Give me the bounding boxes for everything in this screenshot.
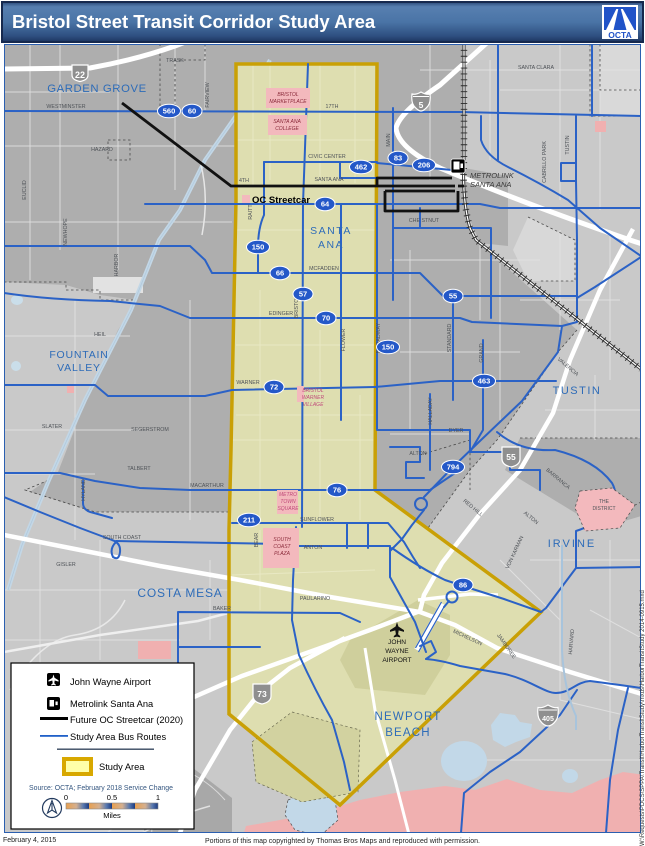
- svg-text:ANTON: ANTON: [304, 545, 323, 551]
- svg-text:Future OC Streetcar (2020): Future OC Streetcar (2020): [70, 715, 183, 725]
- svg-text:COAST: COAST: [273, 544, 291, 550]
- svg-text:GRAND: GRAND: [479, 343, 485, 362]
- svg-text:DISTRICT: DISTRICT: [592, 506, 615, 512]
- svg-text:EDINGER: EDINGER: [269, 311, 293, 317]
- svg-text:55: 55: [506, 452, 516, 462]
- svg-text:560: 560: [163, 107, 176, 116]
- svg-text:WAYNE: WAYNE: [385, 648, 409, 655]
- svg-text:HYLAND: HYLAND: [81, 479, 87, 501]
- svg-text:66: 66: [276, 269, 284, 278]
- svg-text:BAKER: BAKER: [213, 606, 231, 612]
- svg-text:February 4, 2015: February 4, 2015: [3, 837, 56, 844]
- svg-text:22: 22: [75, 70, 85, 80]
- svg-text:ANA: ANA: [318, 239, 344, 251]
- svg-text:463: 463: [478, 377, 491, 386]
- svg-text:WESTMINSTER: WESTMINSTER: [46, 104, 85, 110]
- svg-text:70: 70: [322, 314, 330, 323]
- svg-text:EUCLID: EUCLID: [22, 180, 28, 200]
- svg-text:SANTA ANA: SANTA ANA: [314, 177, 344, 183]
- svg-text:AIRPORT: AIRPORT: [382, 657, 411, 664]
- svg-text:SOUTH COAST: SOUTH COAST: [103, 535, 142, 541]
- svg-text:Study Area Bus Routes: Study Area Bus Routes: [70, 732, 166, 742]
- svg-text:Portions of this map copyright: Portions of this map copyrighted by Thom…: [205, 838, 480, 845]
- svg-text:NEWPORT: NEWPORT: [375, 711, 442, 723]
- svg-text:Study Area: Study Area: [99, 762, 145, 772]
- svg-text:SQUARE: SQUARE: [277, 506, 299, 512]
- svg-text:VILLAGE: VILLAGE: [303, 402, 325, 408]
- svg-text:John Wayne Airport: John Wayne Airport: [70, 677, 151, 687]
- svg-text:JOHN: JOHN: [388, 639, 406, 646]
- svg-text:206: 206: [418, 161, 431, 170]
- svg-text:4TH: 4TH: [239, 178, 249, 184]
- svg-text:211: 211: [243, 516, 255, 525]
- svg-text:150: 150: [382, 343, 395, 352]
- svg-text:Bristol Street Transit Corrido: Bristol Street Transit Corridor Study Ar…: [12, 11, 376, 32]
- svg-text:GARDEN GROVE: GARDEN GROVE: [47, 83, 146, 95]
- svg-text:METRO: METRO: [279, 492, 297, 498]
- svg-text:76: 76: [333, 486, 341, 495]
- svg-text:COLLEGE: COLLEGE: [275, 126, 299, 132]
- svg-text:FLOWER: FLOWER: [341, 329, 347, 352]
- svg-text:17TH: 17TH: [326, 104, 339, 110]
- svg-text:Source: OCTA; February 2018 Se: Source: OCTA; February 2018 Service Chan…: [29, 785, 173, 792]
- svg-text:SANTA CLARA: SANTA CLARA: [518, 65, 555, 71]
- svg-text:CABRILLO PARK: CABRILLO PARK: [542, 141, 548, 183]
- svg-text:MARKETPLACE: MARKETPLACE: [269, 99, 307, 105]
- svg-text:5: 5: [419, 100, 424, 110]
- svg-text:73: 73: [257, 689, 267, 699]
- svg-text:ALTON: ALTON: [409, 451, 426, 457]
- svg-text:CHE STNUT: CHE STNUT: [409, 218, 440, 224]
- svg-text:TRASK: TRASK: [166, 58, 184, 64]
- svg-text:FOUNTAIN: FOUNTAIN: [49, 349, 108, 361]
- svg-text:150: 150: [252, 243, 265, 252]
- svg-text:VALLEY: VALLEY: [57, 362, 101, 374]
- svg-text:57: 57: [299, 290, 307, 299]
- svg-text:PAULARINO: PAULARINO: [300, 596, 330, 602]
- svg-text:83: 83: [394, 154, 402, 163]
- svg-text:405: 405: [542, 716, 554, 723]
- svg-text:DYER: DYER: [449, 428, 464, 434]
- svg-text:SANTA ANA: SANTA ANA: [470, 180, 511, 189]
- svg-text:MAIN: MAIN: [386, 133, 392, 146]
- svg-text:SOUTH: SOUTH: [273, 537, 291, 543]
- svg-text:HARBOR: HARBOR: [114, 253, 120, 276]
- svg-text:Metrolink Santa Ana: Metrolink Santa Ana: [70, 699, 154, 709]
- svg-text:86: 86: [459, 581, 467, 590]
- svg-text:64: 64: [321, 200, 330, 209]
- svg-text:W:\Requests\PDCS\SPPA\Transit\: W:\Requests\PDCS\SPPA\Transit\HarborTran…: [640, 590, 645, 846]
- svg-text:OC Streetcar: OC Streetcar: [252, 195, 310, 206]
- svg-text:WARNER: WARNER: [302, 395, 325, 401]
- svg-text:BEACH: BEACH: [385, 727, 431, 739]
- svg-text:SANTA: SANTA: [310, 225, 352, 237]
- svg-text:Miles: Miles: [103, 811, 121, 820]
- svg-text:55: 55: [449, 292, 457, 301]
- svg-text:SANTA ANA: SANTA ANA: [273, 119, 301, 125]
- svg-text:RAITT: RAITT: [248, 204, 254, 220]
- svg-text:794: 794: [447, 463, 460, 472]
- svg-text:1: 1: [156, 793, 160, 802]
- svg-text:HAZARD: HAZARD: [91, 147, 113, 153]
- svg-text:0.5: 0.5: [107, 793, 117, 802]
- svg-text:WARNER: WARNER: [236, 380, 260, 386]
- svg-text:FAIRVIEW: FAIRVIEW: [205, 82, 211, 107]
- svg-text:462: 462: [355, 163, 368, 172]
- svg-text:METROLINK: METROLINK: [470, 171, 515, 180]
- svg-text:HALLADAY: HALLADAY: [428, 397, 434, 425]
- svg-text:BRISTOL: BRISTOL: [302, 388, 324, 394]
- svg-text:STANDARD: STANDARD: [447, 323, 453, 352]
- svg-text:OCTA: OCTA: [608, 30, 631, 40]
- svg-text:CIVIC CENTER: CIVIC CENTER: [308, 154, 346, 160]
- svg-text:MCFADDEN: MCFADDEN: [309, 266, 339, 272]
- svg-text:TUSTIN: TUSTIN: [553, 385, 602, 397]
- svg-text:THE: THE: [599, 499, 610, 505]
- svg-text:TUSTIN: TUSTIN: [565, 135, 571, 154]
- svg-text:MACARTHUR: MACARTHUR: [190, 483, 224, 489]
- svg-text:SUNFLOWER: SUNFLOWER: [300, 517, 334, 523]
- svg-text:SEGERSTROM: SEGERSTROM: [131, 427, 169, 433]
- svg-text:COSTA MESA: COSTA MESA: [137, 586, 222, 600]
- svg-text:SLATER: SLATER: [42, 424, 62, 430]
- svg-text:BEAR: BEAR: [254, 533, 260, 548]
- svg-text:GISLER: GISLER: [56, 562, 76, 568]
- svg-text:0: 0: [64, 793, 68, 802]
- svg-text:HEIL: HEIL: [94, 332, 106, 338]
- svg-text:TOWN: TOWN: [280, 499, 296, 505]
- svg-text:72: 72: [270, 383, 278, 392]
- svg-text:IRVINE: IRVINE: [548, 538, 596, 550]
- svg-text:TALBERT: TALBERT: [127, 466, 151, 472]
- svg-text:60: 60: [188, 107, 196, 116]
- svg-text:NEWHOPE: NEWHOPE: [63, 218, 69, 246]
- svg-text:PLAZA: PLAZA: [274, 551, 291, 557]
- svg-text:BRISTOL: BRISTOL: [277, 92, 299, 98]
